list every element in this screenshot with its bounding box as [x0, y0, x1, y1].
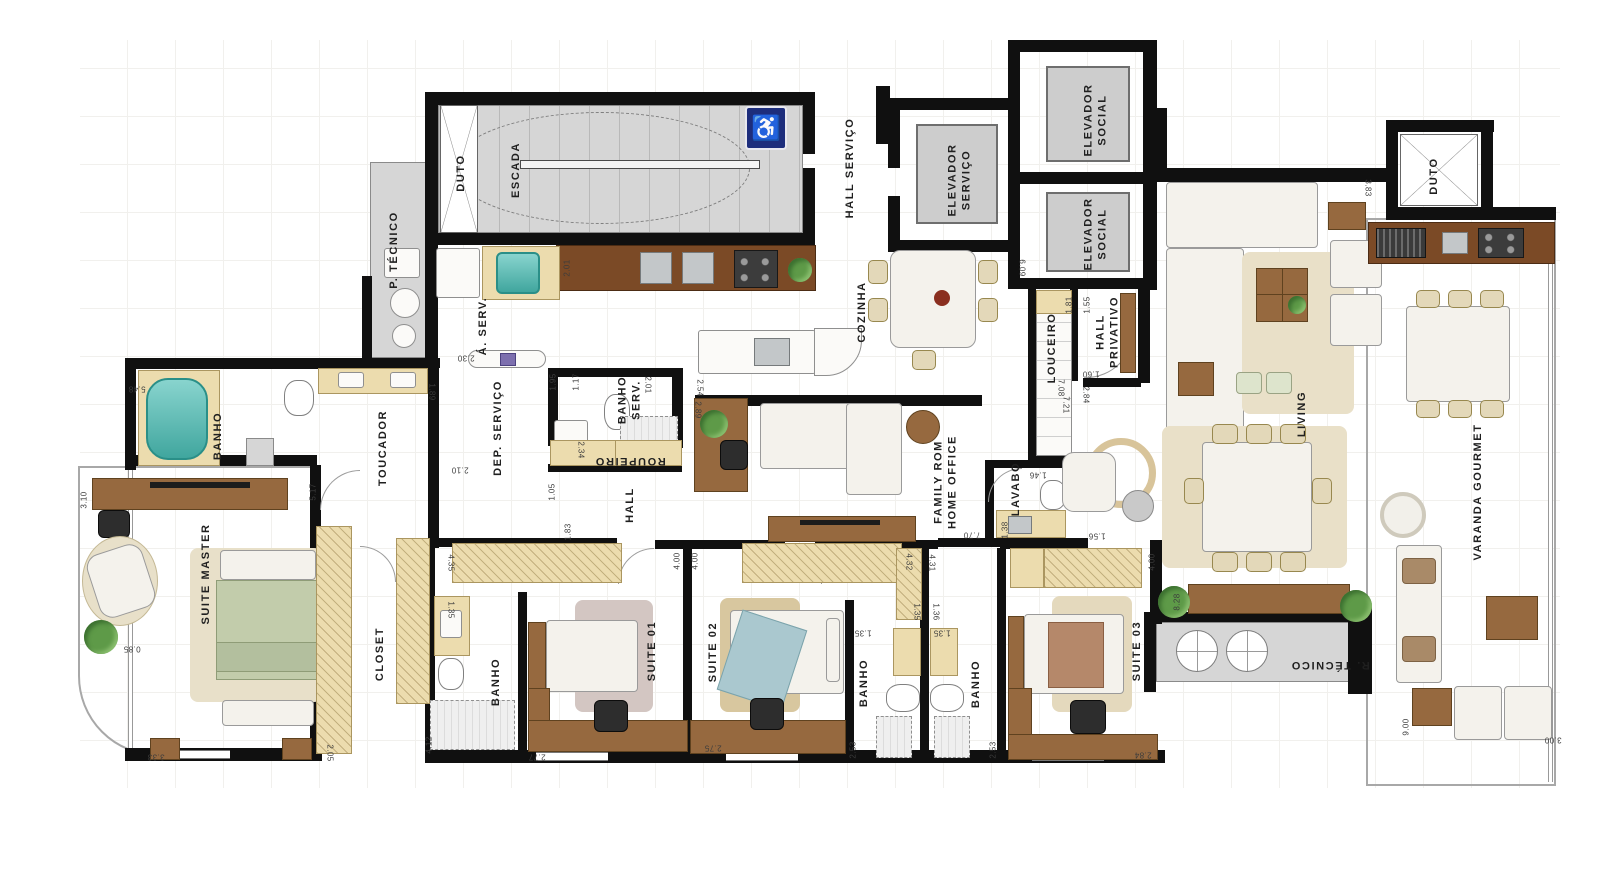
window	[536, 752, 608, 761]
exhaust-fan	[1176, 630, 1218, 672]
gourmet-sink	[1442, 232, 1468, 254]
dimension-label: 2.84	[1134, 751, 1151, 760]
dimension-label: 2.89	[694, 401, 703, 418]
toilet	[886, 684, 920, 712]
wall	[985, 460, 994, 544]
wall	[1008, 172, 1156, 184]
side-table	[1412, 688, 1452, 726]
room-label-louceiro: LOUCEIRO	[1045, 313, 1059, 384]
armchair	[1504, 686, 1552, 740]
office-chair	[750, 698, 784, 730]
bed-suite01	[546, 620, 638, 692]
shower	[876, 716, 912, 758]
dining-chair	[1212, 552, 1238, 572]
dimension-label: 2.30	[457, 354, 474, 363]
dining-chair	[1184, 478, 1204, 504]
dining-chair	[1480, 400, 1504, 418]
dimension-label: 4.31	[928, 554, 937, 571]
wardrobe	[452, 543, 622, 583]
wall	[1386, 120, 1398, 220]
wall	[888, 98, 900, 168]
closet-wardrobe	[396, 538, 430, 704]
plant	[788, 258, 812, 282]
dimension-label: 1.60	[1082, 370, 1099, 379]
room-label-r-t-cnico: R. TÉCNICO	[1290, 658, 1370, 672]
dimension-label: 7.08	[1057, 379, 1066, 396]
dimension-label: 1.35	[933, 629, 950, 638]
dimension-label: 2.75	[704, 744, 721, 753]
living-sofa	[1166, 182, 1318, 248]
kitchen-sink	[640, 252, 672, 284]
room-label-suite-master: SUITE MASTER	[199, 523, 213, 624]
armchair	[1454, 686, 1502, 740]
room-label-suite-01: SUITE 01	[645, 621, 659, 682]
pouf	[1266, 372, 1292, 394]
coffee-tables	[1256, 268, 1308, 322]
floor-plan: ♿	[0, 0, 1600, 888]
tv	[800, 520, 880, 525]
stair-handrail	[520, 160, 760, 169]
closet-wardrobe	[316, 526, 352, 754]
dining-chair	[978, 260, 998, 284]
room-label-elevador-servi-o: ELEVADOR SERVIÇO	[946, 143, 975, 216]
room-label-banho-serv: BANHO SERV.	[616, 376, 645, 424]
dimension-label: 3.83	[1364, 179, 1373, 196]
dimension-label: 1.89	[428, 383, 437, 400]
dimension-label: 7.70	[963, 531, 980, 540]
wall	[425, 233, 803, 245]
dimension-label: 4.32	[905, 553, 914, 570]
wall	[1138, 283, 1150, 383]
room-label-duto: DUTO	[454, 154, 468, 191]
dining-chair	[1448, 290, 1472, 308]
side-table-round	[1122, 490, 1154, 522]
washing-machine	[436, 248, 480, 298]
headboard	[220, 550, 316, 580]
dining-chair	[1246, 552, 1272, 572]
dimension-label: 5.48	[128, 385, 145, 394]
room-label-banho: BANHO	[969, 660, 983, 708]
iron	[500, 353, 516, 366]
room-label-serv: Á. SERV.	[476, 297, 490, 356]
wall	[803, 168, 815, 245]
wardrobe	[742, 543, 902, 583]
shower	[430, 700, 515, 750]
dimension-label: 1.55	[1083, 296, 1092, 313]
dimension-label: 8.28	[1173, 593, 1182, 610]
bed-bench	[222, 700, 314, 726]
room-label-lavabo: LAVABO	[1009, 462, 1023, 516]
room-label-banho: BANHO	[211, 412, 225, 460]
side-table	[1328, 202, 1366, 230]
wall	[125, 358, 136, 470]
coffee-table	[1486, 596, 1538, 640]
pillow	[826, 618, 840, 682]
equipment-circle	[392, 324, 416, 348]
island-sink	[754, 338, 790, 366]
dimension-label: 1.81	[1065, 296, 1074, 313]
headboard	[1008, 616, 1024, 692]
family-sofa-chaise	[846, 403, 902, 495]
living-sofa-left	[1166, 248, 1244, 446]
dimension-label: 1.35	[913, 603, 922, 620]
dimension-label: 1.35	[447, 601, 456, 618]
dimension-label: 0.85	[123, 645, 140, 654]
dimension-label: 2.01	[644, 376, 653, 393]
room-label-elevador-social: ELEVADOR SOCIAL	[1082, 197, 1111, 270]
chair	[98, 510, 130, 538]
dimension-label: 2.01	[563, 259, 572, 276]
dining-chair	[978, 298, 998, 322]
equipment-circle	[390, 288, 420, 318]
dining-table	[1202, 442, 1312, 552]
dimension-label: 1.36	[932, 603, 941, 620]
armchair	[1062, 452, 1116, 512]
dining-chair	[1312, 478, 1332, 504]
wall	[1008, 52, 1020, 174]
dimension-label: 2.77	[528, 753, 545, 762]
bed-blanket	[1048, 622, 1104, 688]
table-centerpiece	[934, 290, 950, 306]
plant	[84, 620, 118, 654]
dining-chair	[1212, 424, 1238, 444]
room-label-escada: ESCADA	[509, 142, 523, 198]
dimension-label: 4.12	[425, 736, 434, 753]
dining-chair	[1416, 400, 1440, 418]
dimension-label: 1.83	[564, 523, 573, 540]
dimension-label: 3.10	[80, 491, 89, 508]
wall	[518, 592, 527, 758]
dimension-label: 2.54	[696, 379, 705, 396]
dimension-label: 2.84	[1082, 386, 1091, 403]
wall	[425, 92, 815, 105]
dimension-label: 4.00	[691, 552, 700, 569]
dimension-label: 1.35	[854, 629, 871, 638]
room-label-p-t-cnico: P. TÉCNICO	[387, 211, 401, 289]
office-chair	[1070, 700, 1106, 734]
shower-drain	[246, 438, 274, 466]
wall	[1028, 283, 1036, 463]
wheelchair-glyph: ♿	[751, 114, 781, 143]
dimension-label: 5.17	[309, 483, 318, 500]
kitchen-dining-table	[890, 250, 976, 348]
office-chair	[594, 700, 628, 732]
wall	[1083, 378, 1141, 387]
room-label-varanda-gourmet: VARANDA GOURMET	[1471, 423, 1485, 560]
plant	[700, 410, 728, 438]
bed-blanket-fold	[216, 642, 320, 672]
dining-chair	[868, 298, 888, 322]
room-label-living: LIVING	[1295, 391, 1309, 437]
dimension-label: 2.05	[326, 744, 335, 761]
room-label-cozinha: COZINHA	[855, 281, 869, 342]
wall	[1155, 168, 1393, 182]
bathroom-counter	[893, 628, 921, 676]
dimension-label: 4.00	[673, 552, 682, 569]
round-table	[1380, 492, 1426, 538]
nightstand	[282, 738, 312, 760]
dimension-label: 2.10	[451, 466, 468, 475]
dining-chair	[1448, 400, 1472, 418]
plant	[1288, 296, 1306, 314]
vanity-sink	[338, 372, 364, 388]
armchair	[1330, 294, 1382, 346]
room-label-hall-privativo: HALL PRIVATIVO	[1094, 296, 1123, 368]
lavabo-sink	[1008, 516, 1032, 534]
wall	[803, 92, 815, 154]
dimension-label: 2.53	[849, 741, 858, 758]
barbecue-grill	[1376, 228, 1426, 258]
room-label-hall-servi-o: HALL SERVIÇO	[843, 118, 857, 219]
room-label-dep-servi-o: DEP. SERVIÇO	[491, 380, 505, 476]
dimension-label: 1.38	[1001, 521, 1010, 538]
room-label-elevador-social: ELEVADOR SOCIAL	[1082, 83, 1111, 156]
room-label-duto: DUTO	[1427, 157, 1441, 194]
dimension-label: 3.33	[147, 753, 164, 762]
room-label-suite-02: SUITE 02	[706, 622, 720, 683]
entry-door	[1120, 293, 1136, 373]
sofa-cushion	[1402, 558, 1436, 584]
room-label-family-rom-home-office: FAMILY ROM HOME OFFICE	[932, 435, 961, 529]
wall	[425, 92, 438, 360]
wall	[362, 276, 372, 368]
dimension-label: 2.53	[989, 741, 998, 758]
room-label-roupeiro: ROUPEIRO	[594, 454, 665, 468]
tv-console	[1178, 362, 1214, 396]
wall	[1144, 612, 1156, 692]
dimension-label: 1.46	[1029, 471, 1046, 480]
kitchen-sink	[682, 252, 714, 284]
wardrobe	[1010, 548, 1044, 588]
room-label-hall: HALL	[623, 487, 637, 523]
wall	[997, 548, 1006, 760]
room-label-suite-03: SUITE 03	[1130, 621, 1144, 682]
toilet	[930, 684, 964, 712]
gourmet-table	[1406, 306, 1510, 402]
sofa-cushion	[1402, 636, 1436, 662]
dining-chair	[1280, 552, 1306, 572]
dining-chair	[1480, 290, 1504, 308]
dining-chair	[912, 350, 936, 370]
wall	[845, 600, 854, 758]
laundry-tank	[496, 252, 540, 294]
wardrobe	[1044, 548, 1142, 588]
room-label-closet: CLOSET	[373, 627, 387, 681]
office-chair	[720, 440, 748, 470]
room-label-toucador: TOUCADOR	[376, 410, 390, 486]
dimension-label: 1.95	[549, 373, 558, 390]
pouf	[1236, 372, 1262, 394]
toilet	[284, 380, 314, 416]
dimension-label: 7.21	[1062, 396, 1071, 413]
toilet	[438, 658, 464, 690]
room-label-banho: BANHO	[489, 658, 503, 706]
wall	[1008, 40, 1156, 52]
dimension-label: 1.05	[548, 483, 557, 500]
sideboard	[1188, 584, 1350, 614]
dimension-label: 9.00	[1402, 718, 1411, 735]
shower	[934, 716, 970, 758]
wall	[1481, 120, 1493, 220]
wall	[1386, 207, 1556, 220]
dimension-label: 1.17	[572, 373, 581, 390]
wall	[888, 98, 1020, 110]
dining-chair	[1246, 424, 1272, 444]
exhaust-fan	[1226, 630, 1268, 672]
vanity-sink	[390, 372, 416, 388]
gourmet-cooktop	[1478, 228, 1524, 258]
dimension-label: 4.35	[447, 554, 456, 571]
headboard	[528, 622, 546, 690]
room-label-banho: BANHO	[857, 659, 871, 707]
dining-chair	[1416, 290, 1440, 308]
dining-chair	[868, 260, 888, 284]
dimension-label: 6.09	[1018, 259, 1027, 276]
dimension-label: 3.00	[1544, 736, 1561, 745]
wheelchair-accessibility-icon: ♿	[745, 106, 787, 150]
bathtub	[146, 378, 208, 460]
stove-cooktop	[734, 250, 778, 288]
dimension-label: 4.00	[1148, 553, 1157, 570]
wall	[1386, 120, 1494, 132]
dimension-label: 1.56	[1088, 532, 1105, 541]
dimension-label: 2.34	[577, 441, 586, 458]
tv	[150, 482, 250, 488]
plant	[1340, 590, 1372, 622]
